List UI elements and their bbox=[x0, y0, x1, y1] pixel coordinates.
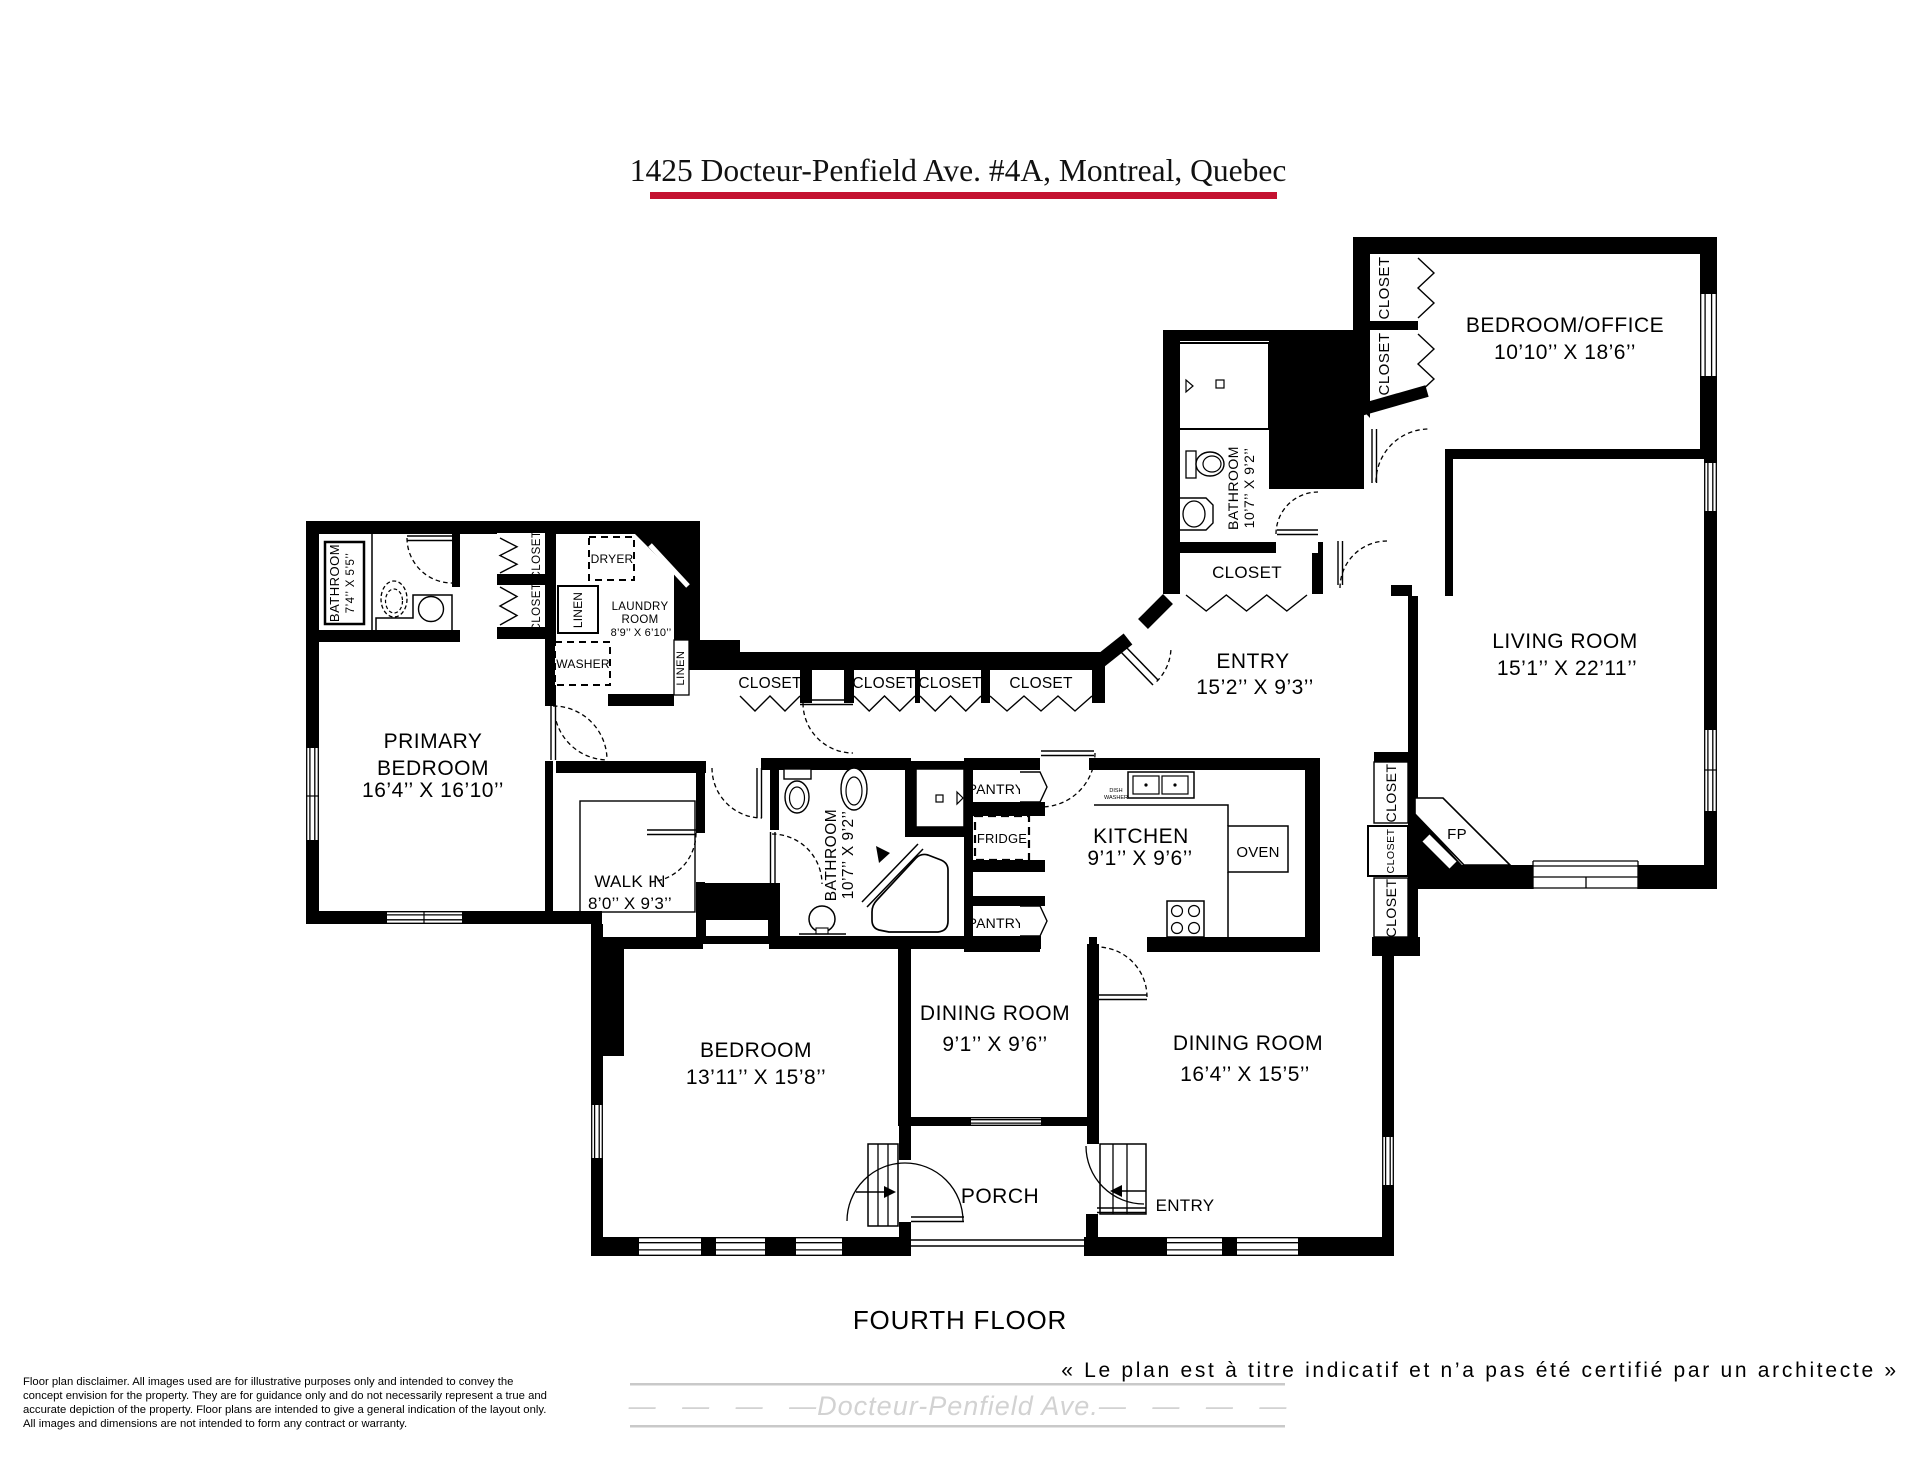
svg-text:10’7’’ X 9’2’’: 10’7’’ X 9’2’’ bbox=[840, 811, 857, 900]
svg-text:CLOSET: CLOSET bbox=[918, 675, 982, 692]
svg-text:15’2’’ X 9’3’’: 15’2’’ X 9’3’’ bbox=[1196, 676, 1314, 699]
svg-text:8’0’’ X 9’3’’: 8’0’’ X 9’3’’ bbox=[588, 894, 672, 913]
svg-text:LAUNDRY: LAUNDRY bbox=[612, 601, 669, 613]
svg-text:ENTRY: ENTRY bbox=[1156, 1196, 1215, 1215]
svg-text:7’4’’ X 5’5’’: 7’4’’ X 5’5’’ bbox=[345, 553, 357, 614]
svg-text:— — — —Docteur-Penfield: — — — —Docteur-Penfield Ave.— — — — bbox=[628, 1391, 1288, 1421]
svg-text:CLOSET: CLOSET bbox=[738, 675, 802, 692]
svg-text:13’11’’ X 15’8’’: 13’11’’ X 15’8’’ bbox=[686, 1066, 826, 1089]
svg-text:DINING ROOM: DINING ROOM bbox=[920, 1002, 1070, 1025]
svg-text:ROOM: ROOM bbox=[622, 614, 659, 626]
svg-text:8’9’’ X 6’10’’: 8’9’’ X 6’10’’ bbox=[611, 627, 672, 639]
svg-text:LINEN: LINEN bbox=[571, 592, 585, 628]
svg-text:FOURTH FLOOR: FOURTH FLOOR bbox=[853, 1305, 1067, 1335]
svg-text:BEDROOM: BEDROOM bbox=[700, 1039, 812, 1062]
svg-text:All images and dimensions are: All images and dimensions are not intend… bbox=[23, 1418, 407, 1430]
svg-text:FRIDGE: FRIDGE bbox=[977, 831, 1027, 846]
svg-text:DISH: DISH bbox=[1109, 788, 1122, 794]
svg-text:KITCHEN: KITCHEN bbox=[1093, 825, 1189, 848]
svg-text:10’7’’ X 9’2’’: 10’7’’ X 9’2’’ bbox=[1241, 448, 1257, 529]
svg-text:CLOSET: CLOSET bbox=[1376, 332, 1393, 395]
svg-text:PORCH: PORCH bbox=[961, 1185, 1039, 1208]
svg-text:BATHROOM: BATHROOM bbox=[1225, 446, 1241, 530]
svg-text:WALK IN: WALK IN bbox=[594, 872, 665, 891]
svg-text:Floor plan disclaimer. All ima: Floor plan disclaimer. All images used a… bbox=[23, 1376, 513, 1388]
svg-text:15’1’’ X 22’11’’: 15’1’’ X 22’11’’ bbox=[1497, 657, 1637, 680]
svg-text:accurate depiction of the prop: accurate depiction of the property. Floo… bbox=[23, 1404, 546, 1416]
svg-text:CLOSET: CLOSET bbox=[1376, 256, 1393, 319]
svg-text:1425 Docteur-Penfield Ave. #4A: 1425 Docteur-Penfield Ave. #4A, Montreal… bbox=[630, 153, 1287, 188]
svg-text:CLOSET: CLOSET bbox=[1383, 763, 1399, 822]
svg-text:16’4’’ X 15’5’’: 16’4’’ X 15’5’’ bbox=[1180, 1063, 1310, 1086]
svg-text:CLOSET: CLOSET bbox=[1212, 563, 1282, 582]
svg-text:« Le plan est à titre indicati: « Le plan est à titre indicatif et n’a p… bbox=[1061, 1359, 1899, 1382]
svg-text:CLOSET: CLOSET bbox=[1009, 675, 1073, 692]
svg-text:BEDROOM: BEDROOM bbox=[377, 757, 489, 780]
svg-text:PANTRY: PANTRY bbox=[968, 781, 1025, 797]
svg-text:9’1’’ X 9’6’’: 9’1’’ X 9’6’’ bbox=[1087, 847, 1192, 870]
svg-text:BEDROOM/OFFICE: BEDROOM/OFFICE bbox=[1466, 314, 1664, 337]
svg-text:PRIMARY: PRIMARY bbox=[384, 730, 483, 753]
svg-text:DRYER: DRYER bbox=[591, 552, 634, 566]
svg-text:9’1’’ X 9’6’’: 9’1’’ X 9’6’’ bbox=[942, 1033, 1047, 1056]
svg-text:OVEN: OVEN bbox=[1236, 844, 1279, 861]
svg-text:concept envision for the prope: concept envision for the property. They … bbox=[23, 1390, 547, 1402]
svg-text:CLOSET: CLOSET bbox=[1385, 828, 1397, 873]
svg-text:WASHER: WASHER bbox=[1104, 795, 1128, 801]
svg-text:DINING ROOM: DINING ROOM bbox=[1173, 1032, 1323, 1055]
svg-text:LIVING ROOM: LIVING ROOM bbox=[1492, 630, 1638, 653]
svg-text:CLOSET: CLOSET bbox=[1383, 878, 1399, 937]
svg-text:16’4’’ X 16’10’’: 16’4’’ X 16’10’’ bbox=[362, 779, 504, 802]
svg-text:PANTRY: PANTRY bbox=[968, 915, 1025, 931]
svg-text:CLOSET: CLOSET bbox=[852, 675, 916, 692]
svg-text:ENTRY: ENTRY bbox=[1216, 650, 1289, 673]
svg-text:CLOSET: CLOSET bbox=[531, 582, 543, 631]
svg-text:CLOSET: CLOSET bbox=[531, 530, 543, 579]
svg-text:FP: FP bbox=[1447, 826, 1467, 843]
svg-text:BATHROOM: BATHROOM bbox=[327, 544, 342, 622]
svg-text:10’10’’ X 18’6’’: 10’10’’ X 18’6’’ bbox=[1494, 341, 1636, 364]
svg-text:LINEN: LINEN bbox=[675, 651, 687, 686]
svg-text:BATHROOM: BATHROOM bbox=[823, 809, 840, 901]
svg-text:WASHER: WASHER bbox=[556, 657, 610, 671]
